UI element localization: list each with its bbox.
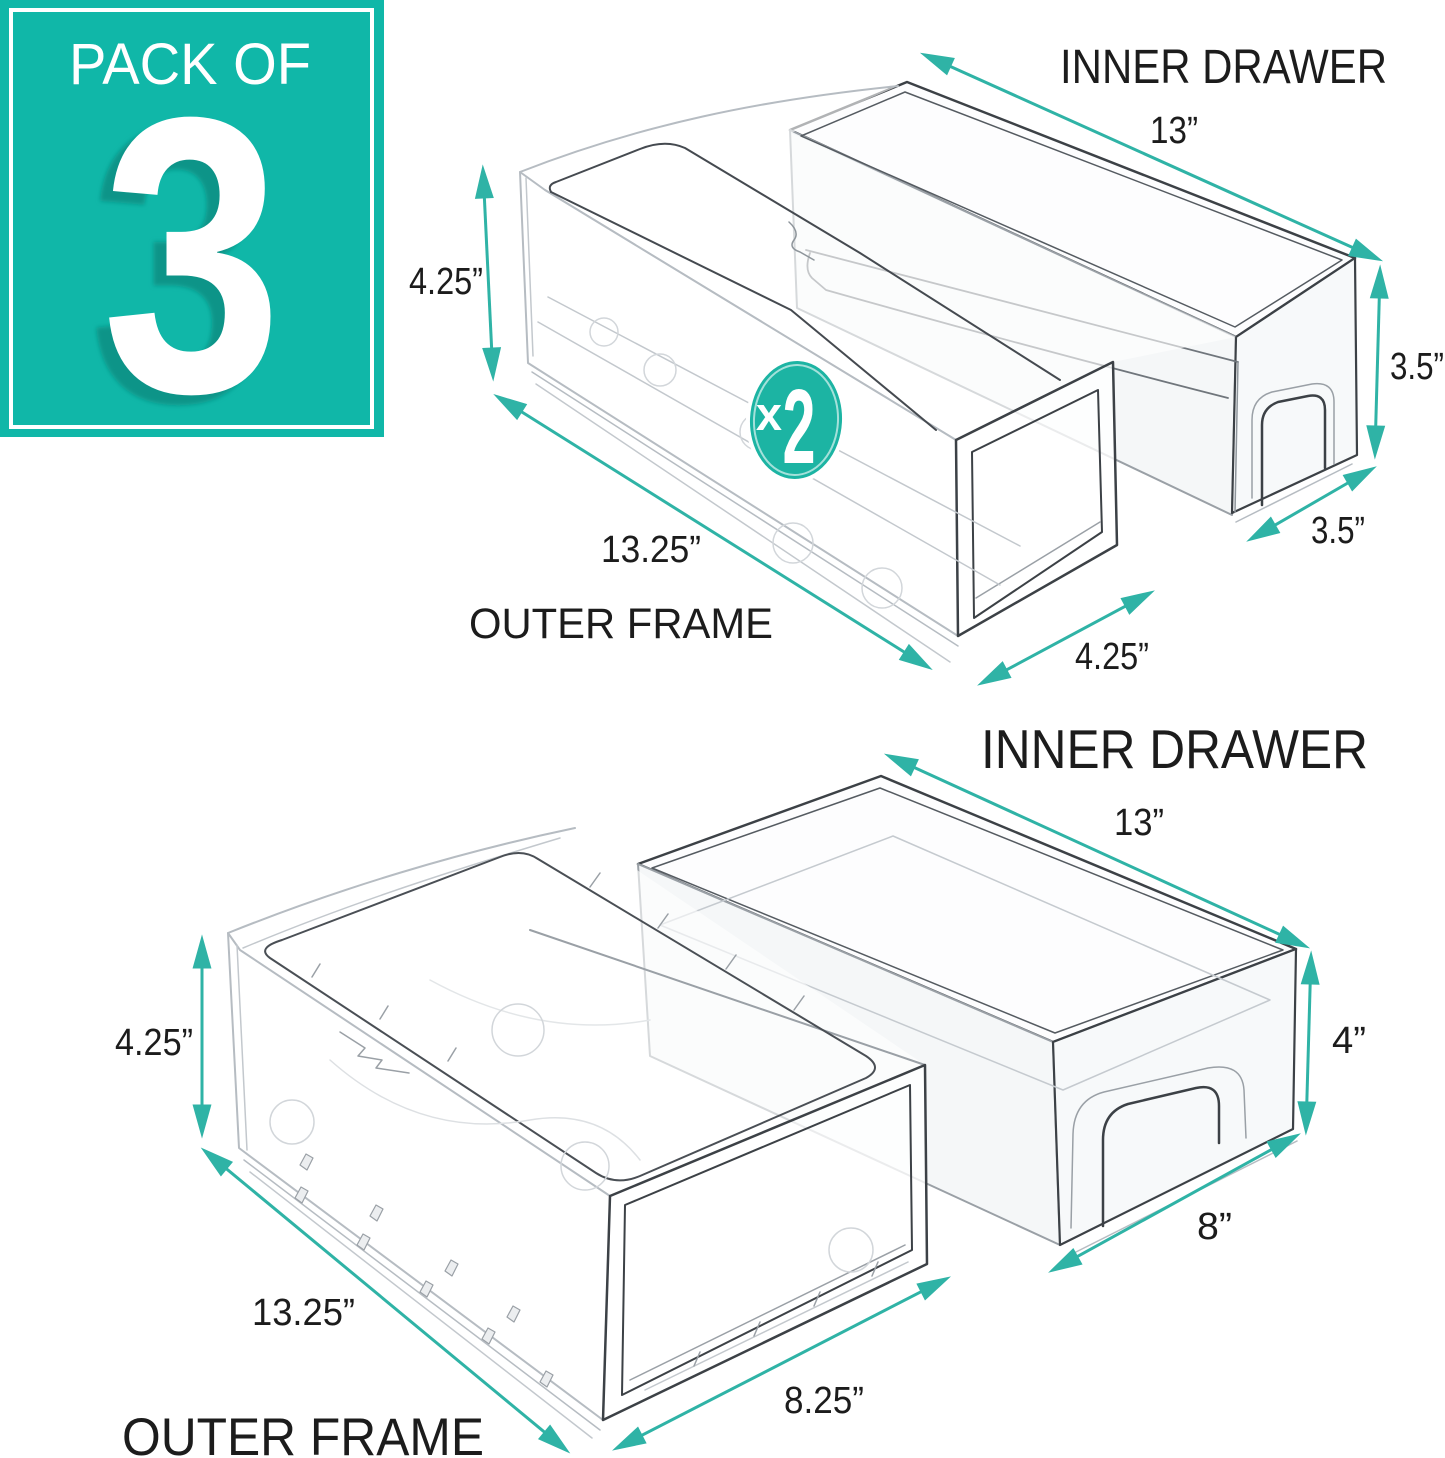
svg-text:13”: 13” — [1150, 110, 1198, 152]
svg-text:INNER DRAWER: INNER DRAWER — [981, 718, 1368, 780]
svg-text:3: 3 — [102, 37, 283, 475]
svg-text:x: x — [756, 387, 782, 440]
svg-text:4.25”: 4.25” — [409, 261, 483, 303]
svg-text:4”: 4” — [1332, 1020, 1366, 1062]
svg-text:OUTER FRAME: OUTER FRAME — [469, 600, 773, 648]
svg-text:13.25”: 13.25” — [252, 1292, 355, 1334]
svg-text:8.25”: 8.25” — [784, 1380, 864, 1422]
svg-text:2: 2 — [782, 368, 815, 486]
svg-text:4.25”: 4.25” — [1075, 636, 1149, 678]
svg-text:8”: 8” — [1197, 1206, 1232, 1248]
svg-text:3.5”: 3.5” — [1390, 346, 1444, 388]
svg-text:3.5”: 3.5” — [1311, 510, 1365, 552]
svg-text:13”: 13” — [1114, 802, 1164, 844]
svg-text:OUTER FRAME: OUTER FRAME — [122, 1408, 484, 1458]
svg-text:13.25”: 13.25” — [601, 529, 701, 571]
svg-text:4.25”: 4.25” — [115, 1022, 193, 1064]
svg-text:INNER DRAWER: INNER DRAWER — [1060, 41, 1387, 94]
